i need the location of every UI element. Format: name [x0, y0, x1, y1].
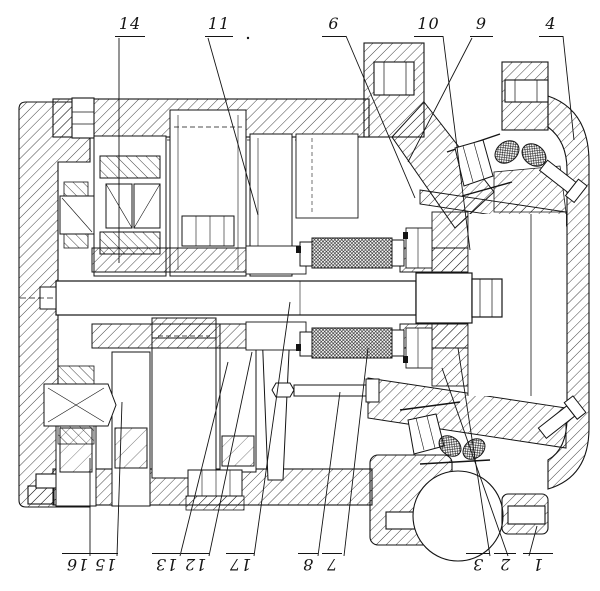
callout-17: 17: [226, 553, 254, 579]
callout-label: 4: [545, 14, 556, 33]
callout-label: 2: [499, 555, 510, 573]
callout-4: 4: [539, 15, 563, 37]
drawing-sheet: 14 11 6 10 9 4 16 15 13 12 17 8 7 3 2 1: [0, 0, 600, 591]
callout-label: 13: [155, 555, 177, 573]
callout-label: 8: [302, 555, 313, 573]
callout-2: 2: [494, 553, 516, 579]
callout-label: 1: [532, 555, 543, 573]
callout-10: 10: [414, 15, 443, 37]
callout-7: 7: [322, 553, 342, 579]
callout-label: 17: [229, 555, 251, 573]
callout-label: 11: [208, 14, 230, 33]
callout-9: 9: [470, 15, 493, 37]
callout-label: 12: [184, 555, 206, 573]
callout-label: 9: [476, 14, 487, 33]
callout-11: 11: [205, 15, 233, 37]
callout-13: 13: [152, 553, 180, 579]
callout-label: 6: [328, 14, 339, 33]
callout-3: 3: [466, 553, 490, 579]
output-shaft: [20, 273, 502, 323]
callout-label: 3: [472, 555, 483, 573]
callout-6: 6: [322, 15, 346, 37]
callout-label: 10: [417, 14, 439, 33]
callout-label: 7: [326, 555, 337, 573]
callout-16: 16: [62, 553, 92, 579]
sectional-drawing: [0, 0, 600, 591]
callout-14: 14: [115, 15, 145, 37]
callout-12: 12: [181, 553, 209, 579]
callout-15: 15: [92, 553, 118, 579]
callout-1: 1: [523, 553, 553, 579]
callout-label: 14: [119, 14, 141, 33]
callout-label: 16: [66, 555, 88, 573]
callout-8: 8: [298, 553, 318, 579]
callout-label: 15: [94, 555, 116, 573]
hex-bolt-head: [272, 383, 294, 397]
